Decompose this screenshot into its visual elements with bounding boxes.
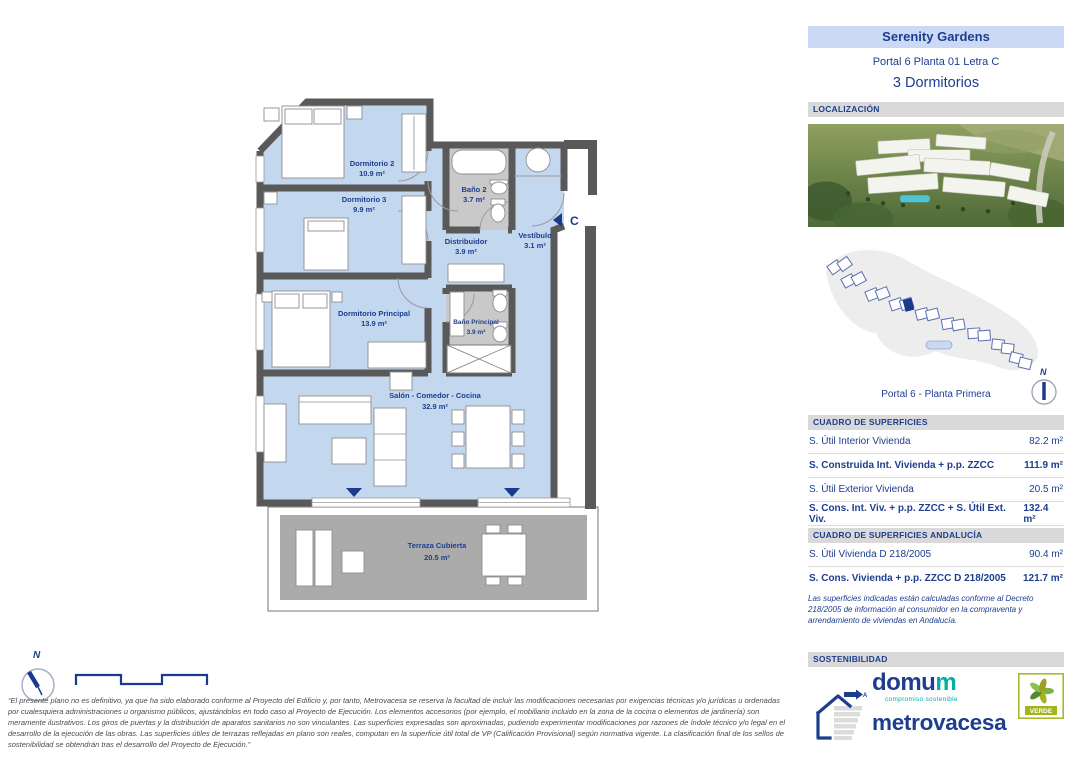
row-label: S. Cons. Vivienda + p.p. ZZCC D 218/2005 [809,573,1006,584]
room-label: Baño 2 [461,185,486,194]
metrovacesa-logo: metrovacesa [872,710,1006,736]
domum-text: domu [872,669,935,696]
row-label: S. Útil Vivienda D 218/2005 [809,549,931,560]
pool [900,195,930,202]
info-panel: Serenity Gardens Portal 6 Planta 01 Letr… [808,26,1064,764]
row-value: 20.5 m² [1029,484,1063,495]
site-plan-caption-row: Portal 6 - Planta Primera N [808,381,1064,409]
room-label: Salón - Comedor - Cocina [389,391,482,400]
row-value: 111.9 m² [1024,460,1063,471]
room-label: Dormitorio 2 [350,159,395,168]
decree-note: Las superficies indicadas están calculad… [808,594,1064,626]
room-area: 9.9 m² [353,205,375,214]
table-row: S. Construida Int. Vivienda + p.p. ZZCC … [808,454,1064,478]
table-row: S. Cons. Vivienda + p.p. ZZCC D 218/2005… [808,567,1064,590]
row-label: S. Útil Interior Vivienda [809,436,911,447]
project-title: Serenity Gardens [808,26,1064,48]
room-label: Distribuidor [445,237,488,246]
room-label: Baño Principal [453,319,499,326]
domum-text-accent: m [935,669,956,696]
room-label: Dormitorio Principal [338,309,410,318]
verde-label: VERDE [1030,708,1053,715]
room-area: 32.9 m² [422,402,448,411]
verde-certificate-logo: VERDE [1018,673,1064,719]
unit-reference: Portal 6 Planta 01 Letra C [808,56,1064,68]
row-value: 90.4 m² [1029,549,1063,560]
exterior-walls [564,140,597,509]
north-label: N [1040,367,1047,377]
site-compass: N [1028,365,1062,409]
floor-plan-sheet: Dormitorio 2 10.9 m² Dormitorio 3 9.9 m²… [0,0,1080,764]
scale-bar [74,668,214,692]
north-label: N [33,650,41,661]
row-label: S. Construida Int. Vivienda + p.p. ZZCC [809,460,994,471]
logos-row: A domum compromiso sostenible metrovaces… [808,673,1064,757]
site-plan-caption: Portal 6 - Planta Primera [881,389,991,400]
floor-plan-drawing: Dormitorio 2 10.9 m² Dormitorio 3 9.9 m²… [252,96,612,626]
energy-house-icon: A [810,683,870,743]
section-cuadro-superficies: CUADRO DE SUPERFICIES [808,415,1064,430]
room-label: Terraza Cubierta [408,541,467,550]
room-label: Dormitorio 3 [342,195,387,204]
unit-type: 3 Dormitorios [808,75,1064,91]
energy-class-label: A [863,693,868,699]
section-sostenibilidad: SOSTENIBILIDAD [808,652,1064,667]
room-area: 3.7 m² [463,195,485,204]
room-area: 3.1 m² [524,241,546,250]
room-area: 3.9 m² [467,329,487,336]
row-value: 82.2 m² [1029,436,1063,447]
section-cuadro-andalucia: CUADRO DE SUPERFICIES ANDALUCÍA [808,528,1064,543]
site-pool [926,341,952,349]
section-localizacion: LOCALIZACIÓN [808,102,1064,117]
aerial-photo [808,124,1064,227]
shower-box [447,345,511,373]
table-row: S. Cons. Int. Viv. + p.p. ZZCC + S. Útil… [808,502,1064,526]
room-area: 13.9 m² [361,319,387,328]
table-row: S. Útil Exterior Vivienda 20.5 m² [808,478,1064,502]
site-plan [808,233,1064,381]
room-label: Vestíbulo [518,231,552,240]
table-row: S. Útil Vivienda D 218/2005 90.4 m² [808,543,1064,567]
room-area: 20.5 m² [424,553,450,562]
room-area: 10.9 m² [359,169,385,178]
domum-subtitle: compromiso sostenible [872,696,1012,703]
row-label: S. Útil Exterior Vivienda [809,484,914,495]
row-label: S. Cons. Int. Viv. + p.p. ZZCC + S. Útil… [809,503,1023,525]
sustainability-block: SOSTENIBILIDAD A domum compro [808,652,1064,757]
entrance-letter: C [570,214,579,228]
legal-disclaimer: “El presente plano no es definitivo, ya … [8,696,790,750]
room-area: 3.9 m² [455,247,477,256]
domum-logo: domum compromiso sostenible [872,671,1012,703]
row-value: 121.7 m² [1023,573,1063,584]
row-value: 132.4 m² [1023,503,1063,525]
table-row: S. Útil Interior Vivienda 82.2 m² [808,430,1064,454]
